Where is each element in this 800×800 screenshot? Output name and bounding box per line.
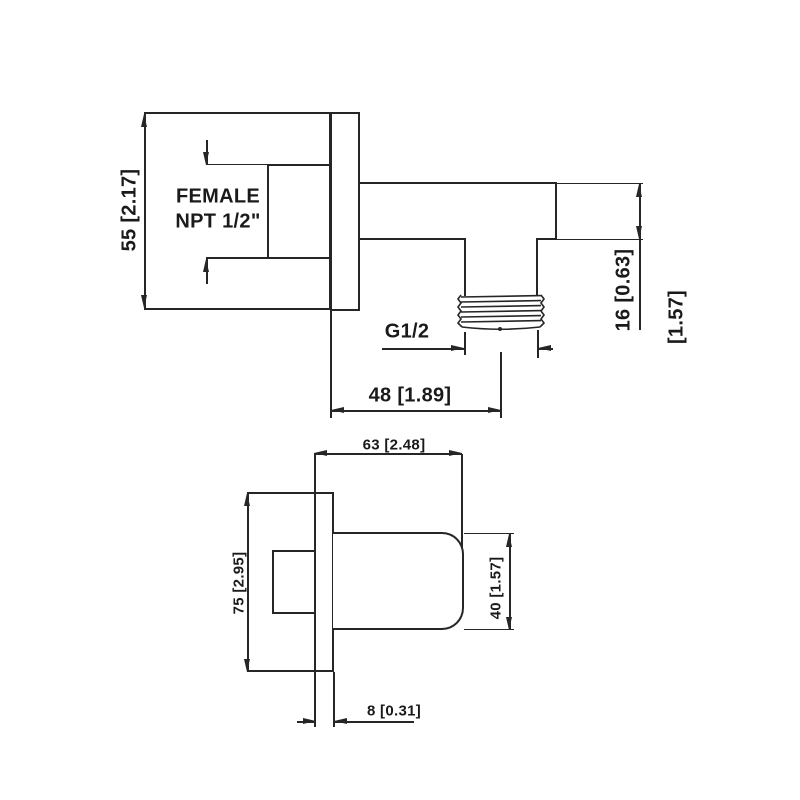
dim16-arrow-down xyxy=(636,226,642,239)
arm-bottom-line-right xyxy=(536,238,557,240)
front-view-rear-socket-outline xyxy=(272,550,316,614)
dim48-arrow-left xyxy=(331,407,344,413)
dim8-arrow-left xyxy=(334,718,347,724)
g12-label: G1/2 xyxy=(385,321,430,344)
port-label-line1: FEMALE xyxy=(176,186,260,209)
dim16-label: 16 [0.63] xyxy=(613,249,636,332)
thread-ridge-line xyxy=(461,296,541,297)
front-view-body-outline xyxy=(333,532,464,630)
top-view-npt-socket-outline xyxy=(267,164,331,259)
dim16-arrow-up xyxy=(636,184,642,197)
socket-dim-top-extension xyxy=(206,164,331,166)
dim48-line xyxy=(331,410,501,412)
dim16-extension-top xyxy=(557,183,643,185)
outlet-stub-right-line xyxy=(536,240,538,296)
dim40-line xyxy=(509,533,511,630)
technical-drawing-canvas: 55 [2.17] FEMALE NPT 1/2" 16 [0.63] [1.5… xyxy=(0,0,800,800)
socket-dim-bottom-arrow xyxy=(203,259,209,272)
dim40-label: 40 [1.57] xyxy=(488,557,505,620)
arm-end-cap-line xyxy=(555,182,557,240)
thread-ridge-line xyxy=(461,306,541,307)
dim63-extension-right xyxy=(461,454,463,549)
dim75-extension-top xyxy=(248,492,314,494)
port-label-line2: NPT 1/2" xyxy=(175,211,260,234)
g12-extension-right xyxy=(537,330,539,358)
dim8-label: 8 [0.31] xyxy=(367,703,421,720)
thread-centerline-dot xyxy=(498,327,502,331)
overall-ref-label: [1.57] xyxy=(666,290,689,344)
arm-top-line xyxy=(358,182,557,184)
dim75-extension-bottom xyxy=(248,670,314,672)
dim16-extension-bottom xyxy=(557,239,643,241)
dim40-arrow-up xyxy=(506,534,512,547)
dim40-arrow-down xyxy=(506,617,512,630)
top-view-plate-edge-outline xyxy=(330,112,360,311)
thread-ridge-line xyxy=(461,311,541,312)
dim63-label: 63 [2.48] xyxy=(363,437,426,454)
dim63-arrow-left xyxy=(314,450,327,456)
dim48-extension-left xyxy=(330,311,332,418)
dim48-arrow-right xyxy=(488,407,501,413)
socket-dim-bottom-extension xyxy=(206,257,331,259)
dim63-line xyxy=(314,453,462,455)
dim63-extension-left xyxy=(314,454,316,492)
thread-right-edge xyxy=(540,295,544,327)
dim55-arrow-up xyxy=(141,114,147,127)
dim55-label: 55 [2.17] xyxy=(119,169,142,252)
dim55-arrow-down xyxy=(141,295,147,308)
dim8-arrow-right xyxy=(303,718,316,724)
dim16-line xyxy=(639,183,641,330)
arm-bottom-line-left xyxy=(358,238,466,240)
thread-ridge-line xyxy=(461,301,541,302)
g12-arrow-left xyxy=(538,345,551,351)
dim75-arrow-up xyxy=(244,493,250,506)
g12-arrow-right xyxy=(451,345,464,351)
g12-extension-left xyxy=(464,332,466,355)
dim48-label: 48 [1.89] xyxy=(369,385,452,408)
thread-ridge-line xyxy=(461,316,541,317)
dim75-label: 75 [2.95] xyxy=(231,552,248,615)
thread-ridge-line xyxy=(461,321,541,322)
front-view-plate-outline xyxy=(314,492,334,672)
outlet-stub-left-line xyxy=(464,240,466,296)
